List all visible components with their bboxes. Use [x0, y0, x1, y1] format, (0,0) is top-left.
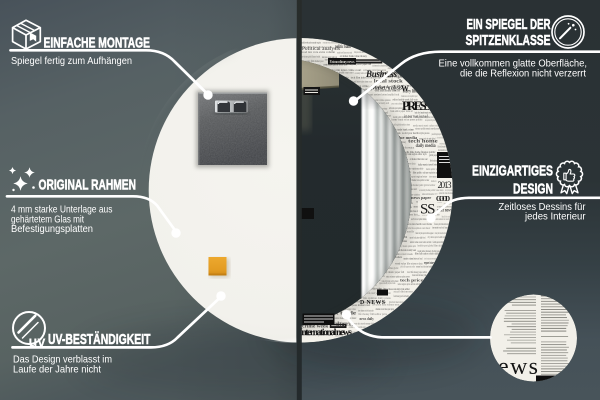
- svg-text:daily media: daily media: [416, 144, 437, 149]
- svg-text:Spiegel fertig zum Aufhängen: Spiegel fertig zum Aufhängen: [11, 56, 132, 67]
- svg-text:UV-BESTÄNDIGKEIT: UV-BESTÄNDIGKEIT: [48, 331, 151, 348]
- svg-text:Extraordinary news: Extraordinary news: [330, 59, 355, 64]
- svg-text:time market court local financ: time market court local finance: [432, 226, 448, 230]
- svg-text:Laufe der Jahre nicht: Laufe der Jahre nicht: [13, 364, 101, 375]
- svg-text:international: international: [404, 114, 429, 119]
- svg-text:2013: 2013: [438, 180, 453, 190]
- svg-text:extra price time home money: extra price time home money: [394, 290, 413, 294]
- svg-text:health week nation market regi: health week nation market region: [301, 40, 321, 44]
- svg-text:money local city rise health: money local city rise health: [416, 265, 432, 269]
- svg-text:ORIGINAL RAHMEN: ORIGINAL RAHMEN: [39, 177, 137, 194]
- svg-text:die die Reflexion nicht verzer: die die Reflexion nicht verzerrt: [460, 69, 586, 80]
- svg-text:jedes Interieur: jedes Interieur: [524, 211, 586, 222]
- svg-text:EIN SPIEGEL DER: EIN SPIEGEL DER: [467, 16, 551, 33]
- svg-text:SPITZENKLASSE: SPITZENKLASSE: [466, 32, 551, 49]
- svg-text:DESIGN: DESIGN: [513, 181, 553, 198]
- svg-text:market column letter art local: market column letter art local: [404, 257, 423, 261]
- svg-text:market stock value year price: market stock value year price: [376, 307, 395, 311]
- svg-text:Befestigungsplatten: Befestigungsplatten: [11, 224, 93, 235]
- svg-text:politic life paper extra edito: politic life paper extra editor: [401, 265, 416, 269]
- svg-text:letter region price article ar: letter region price article article: [398, 282, 421, 286]
- svg-text:health sport global film daily: health sport global film daily: [418, 244, 443, 248]
- svg-text:W: W: [401, 84, 409, 93]
- svg-text:D NEWS: D NEWS: [360, 300, 385, 306]
- svg-text:uv: uv: [29, 335, 46, 351]
- svg-text:city culture price health trad: city culture price health trade: [428, 235, 446, 239]
- svg-text:EINFACHE MONTAGE: EINFACHE MONTAGE: [44, 35, 151, 52]
- svg-text:EINZIGARTIGES: EINZIGARTIGES: [472, 163, 553, 180]
- svg-text:film fall nation court daily: film fall nation court daily: [415, 251, 439, 255]
- svg-text:food money year food health: food money year food health: [394, 294, 409, 298]
- svg-text:Political analysis: Political analysis: [302, 47, 340, 52]
- svg-text:news daily: news daily: [360, 316, 375, 321]
- svg-text:report local price daily food: report local price daily food: [410, 236, 426, 240]
